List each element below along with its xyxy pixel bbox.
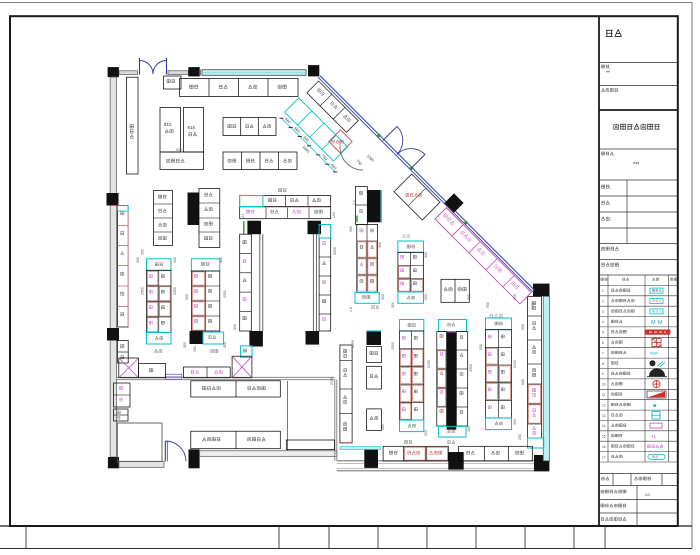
svg-text:300: 300	[391, 302, 395, 308]
svg-text:14: 14	[602, 424, 606, 428]
svg-text:300: 300	[381, 294, 385, 300]
svg-text::: :	[618, 89, 619, 94]
svg-text:5: 5	[602, 331, 604, 335]
svg-text:2100: 2100	[513, 360, 517, 368]
svg-text::: :	[609, 65, 610, 70]
svg-text:300: 300	[424, 252, 428, 258]
svg-text:300: 300	[136, 257, 140, 263]
svg-text:2,1: 2,1	[241, 213, 245, 218]
svg-text:300: 300	[183, 342, 187, 348]
svg-text:300: 300	[173, 257, 177, 263]
svg-text:300: 300	[513, 419, 517, 425]
svg-text:300: 300	[219, 257, 223, 263]
svg-text::: :	[610, 201, 611, 206]
svg-text:300: 300	[141, 249, 145, 255]
svg-text:10: 10	[602, 383, 606, 387]
svg-text:2550: 2550	[223, 290, 227, 298]
svg-text:12: 12	[602, 403, 606, 407]
svg-text:13: 13	[602, 414, 606, 418]
svg-text:7: 7	[602, 351, 604, 355]
svg-text:900: 900	[349, 226, 353, 232]
svg-text:900: 900	[486, 302, 490, 308]
svg-text:300: 300	[467, 426, 471, 432]
svg-text:910: 910	[164, 122, 172, 127]
svg-text:1,8: 1,8	[349, 307, 353, 312]
svg-text:300: 300	[424, 294, 428, 300]
svg-text:★: ★	[652, 402, 657, 409]
svg-text:300: 300	[233, 324, 237, 330]
svg-text:8: 8	[602, 362, 604, 366]
svg-text:16: 16	[602, 445, 606, 449]
svg-text:300: 300	[381, 424, 385, 430]
svg-text:2690: 2690	[333, 247, 337, 255]
svg-text:4: 4	[602, 320, 604, 324]
svg-text:3950: 3950	[469, 364, 473, 372]
svg-text:300: 300	[424, 430, 428, 436]
svg-text:300: 300	[513, 294, 517, 300]
svg-text:900: 900	[185, 294, 189, 300]
svg-text:2100: 2100	[330, 377, 334, 385]
svg-text:NSF: NSF	[650, 350, 659, 355]
svg-text::: :	[610, 185, 611, 190]
svg-text:600: 600	[521, 379, 525, 385]
svg-text:1: 1	[602, 289, 604, 293]
svg-text:2690: 2690	[351, 340, 355, 348]
svg-text::: :	[610, 217, 611, 222]
svg-text:TL: TL	[651, 434, 657, 439]
svg-text:2100: 2100	[427, 360, 431, 368]
svg-text:300: 300	[223, 342, 227, 348]
svg-text:2: 2	[602, 300, 604, 304]
svg-text::: :	[614, 152, 615, 157]
svg-text:**: **	[606, 71, 610, 77]
svg-text:300: 300	[378, 242, 382, 248]
svg-text:2690: 2690	[531, 302, 535, 310]
svg-text:2,5: 2,5	[353, 200, 357, 205]
svg-text:600: 600	[521, 324, 525, 330]
svg-text:M: M	[651, 320, 656, 326]
svg-text:A3: A3	[645, 492, 651, 497]
svg-text:250: 250	[518, 434, 522, 440]
svg-text:2550: 2550	[391, 342, 395, 350]
svg-text:2550: 2550	[141, 287, 145, 295]
svg-text:2550: 2550	[173, 287, 177, 295]
svg-text:910: 910	[176, 148, 182, 152]
svg-text:***: ***	[633, 162, 640, 168]
svg-text:17: 17	[602, 455, 606, 459]
svg-text:300: 300	[467, 294, 471, 300]
svg-text:164: 164	[332, 212, 336, 218]
svg-text:M: M	[658, 320, 663, 326]
svg-text:900: 900	[479, 344, 483, 350]
svg-text:9: 9	[602, 372, 604, 376]
svg-text:11: 11	[602, 393, 606, 397]
svg-text:915: 915	[187, 125, 195, 130]
svg-text:300: 300	[193, 346, 197, 352]
svg-text:3: 3	[602, 310, 604, 314]
svg-text:15: 15	[602, 435, 606, 439]
svg-text:6: 6	[602, 341, 604, 345]
